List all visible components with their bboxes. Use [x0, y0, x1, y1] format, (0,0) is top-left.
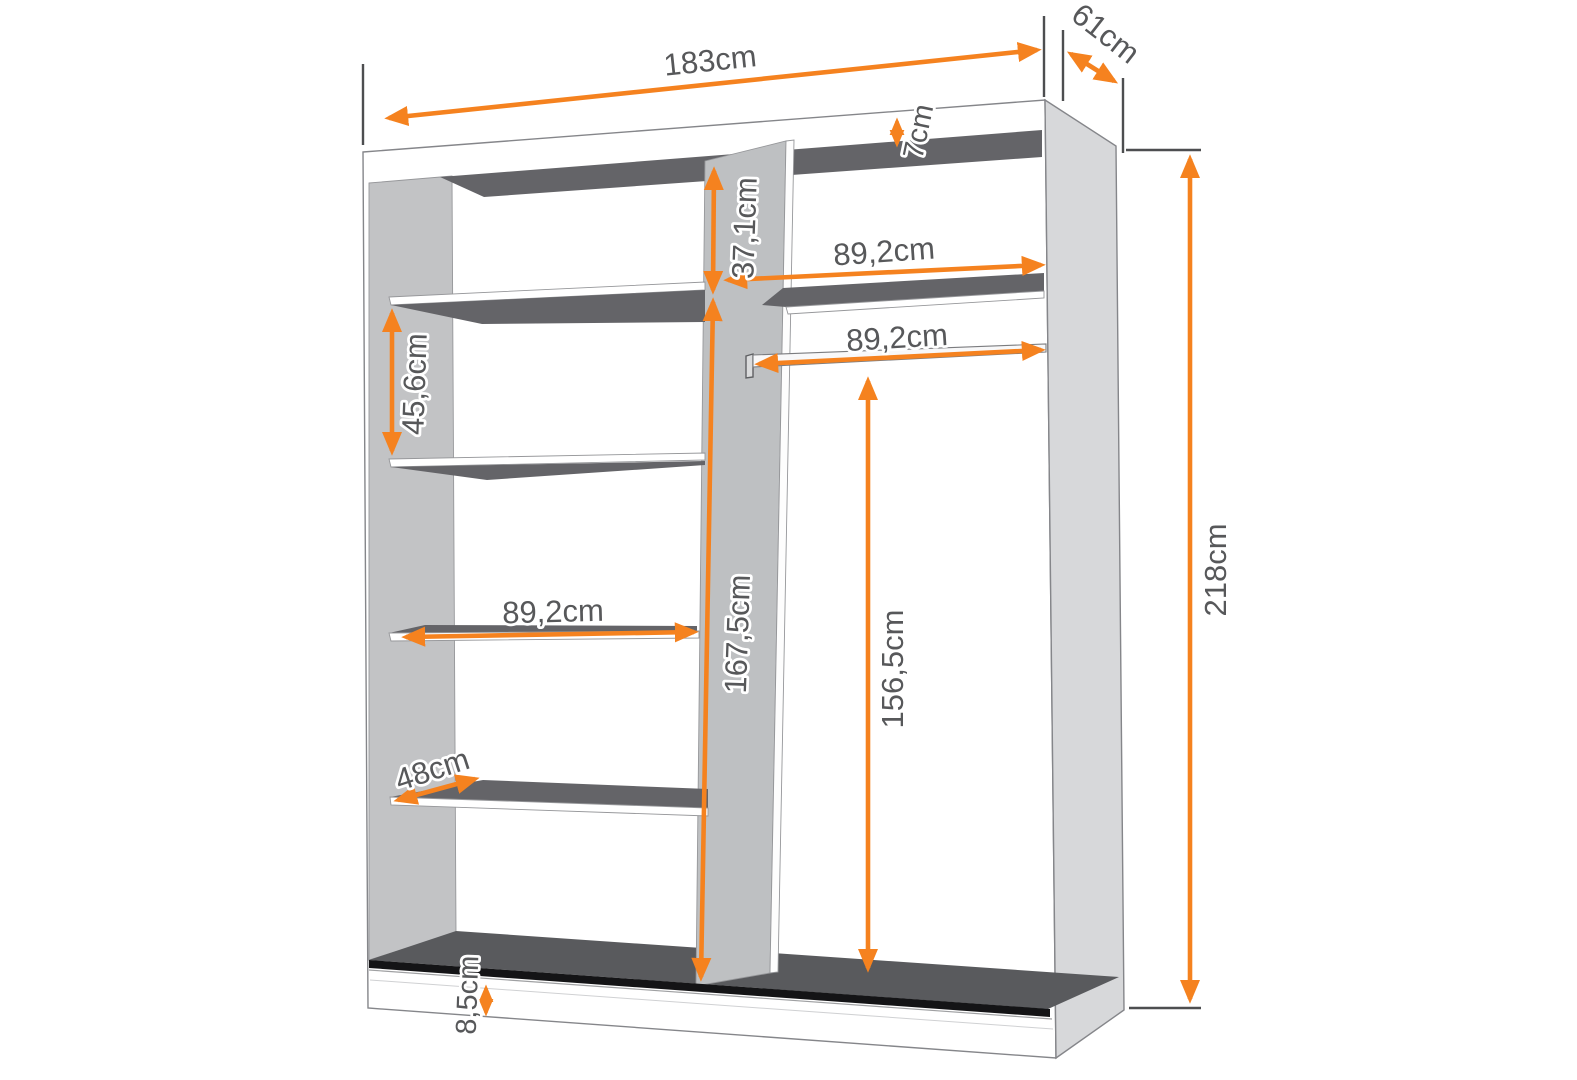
wardrobe-dimension-diagram: 183cm 61cm 218cm 7cm 37,1cm 89,2cm 89,2c… — [0, 0, 1577, 1080]
dim-label-rail-length: 89,2cm — [845, 317, 949, 358]
dim-label-left-section-width: 89,2cm — [502, 593, 605, 631]
dim-label-right-section-width: 89,2cm — [832, 230, 936, 272]
dim-label-plinth-height: 8,5cm — [451, 955, 486, 1035]
rail-bracket — [746, 354, 753, 378]
wardrobe-right-side-panel — [1045, 100, 1124, 1058]
dim-label-total-width: 183cm — [662, 38, 758, 83]
diagram-canvas: 183cm 61cm 218cm 7cm 37,1cm 89,2cm 89,2c… — [0, 0, 1577, 1080]
dim-label-top-section-height: 37,1cm — [725, 177, 764, 280]
left-inner-wall — [369, 176, 456, 960]
arrow-depth — [1071, 54, 1114, 81]
arrow-top-section-height — [713, 171, 714, 290]
dim-label-left-section-height: 45,6cm — [395, 333, 434, 436]
dim-label-total-height: 218cm — [1198, 523, 1233, 616]
dim-label-divider-section-height: 167,5cm — [718, 574, 757, 694]
dim-label-rail-height: 156,5cm — [875, 610, 910, 729]
